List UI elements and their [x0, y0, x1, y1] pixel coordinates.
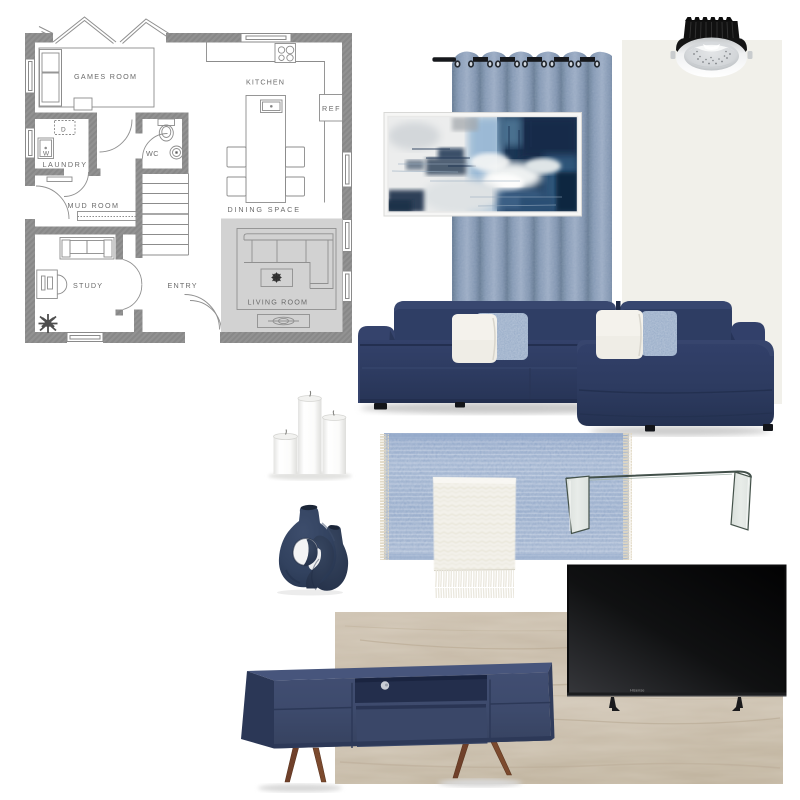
svg-text:D: D — [61, 127, 66, 134]
svg-text:W: W — [43, 151, 50, 158]
svg-text:REF: REF — [322, 104, 340, 113]
svg-text:STUDY: STUDY — [73, 281, 102, 290]
svg-text:WC: WC — [146, 149, 159, 158]
svg-text:DINING SPACE: DINING SPACE — [228, 205, 300, 214]
svg-text:LAUNDRY: LAUNDRY — [43, 160, 87, 169]
svg-text:Hisense: Hisense — [630, 688, 645, 693]
svg-text:MUD ROOM: MUD ROOM — [68, 201, 119, 210]
svg-text:KITCHEN: KITCHEN — [246, 78, 284, 87]
svg-text:ENTRY: ENTRY — [168, 281, 197, 290]
svg-text:LIVING ROOM: LIVING ROOM — [248, 298, 308, 307]
svg-text:GAMES ROOM: GAMES ROOM — [74, 72, 136, 81]
